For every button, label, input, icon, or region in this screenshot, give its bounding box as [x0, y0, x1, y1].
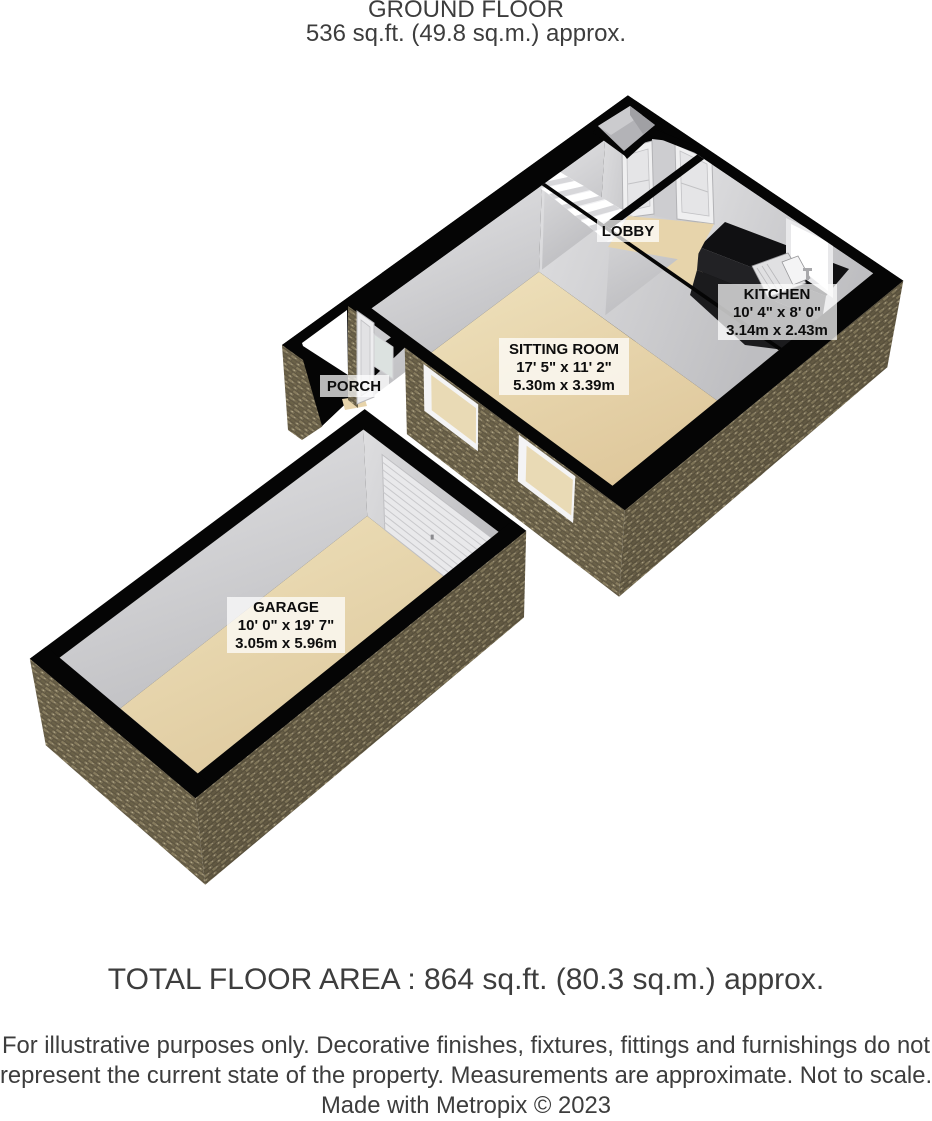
svg-text:10' 0" x 19' 7": 10' 0" x 19' 7"	[238, 617, 334, 634]
svg-text:GARAGE: GARAGE	[253, 599, 319, 616]
svg-text:SITTING ROOM: SITTING ROOM	[509, 341, 619, 358]
svg-text:LOBBY: LOBBY	[602, 223, 655, 240]
svg-text:3.14m x 2.43m: 3.14m x 2.43m	[726, 322, 828, 339]
svg-text:17' 5" x 11' 2": 17' 5" x 11' 2"	[516, 359, 612, 376]
svg-text:KITCHEN: KITCHEN	[744, 286, 811, 303]
svg-text:5.30m x 3.39m: 5.30m x 3.39m	[513, 377, 615, 394]
svg-text:PORCH: PORCH	[327, 378, 381, 395]
svg-text:3.05m x 5.96m: 3.05m x 5.96m	[235, 635, 337, 652]
svg-text:10' 4" x 8' 0": 10' 4" x 8' 0"	[733, 304, 821, 321]
